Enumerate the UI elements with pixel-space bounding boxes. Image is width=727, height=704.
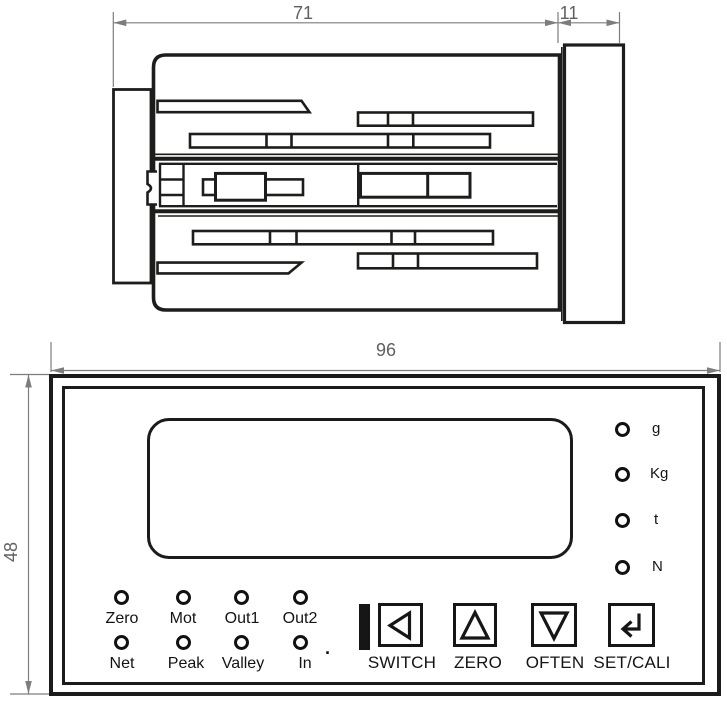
clamp-screw-body <box>216 173 266 200</box>
triangle-down-icon <box>535 607 573 644</box>
led-label-kg: Kg <box>650 465 668 482</box>
zero-button <box>453 603 497 647</box>
rail-upper-long <box>190 134 490 148</box>
led-zero <box>114 590 129 605</box>
zero-button-label: ZERO <box>454 653 502 673</box>
led-label-g: g <box>652 420 660 437</box>
band-right-box <box>361 173 471 197</box>
led-unit-kg <box>615 467 630 482</box>
dim-height-label: 48 <box>1 542 21 562</box>
rear-connector-block <box>114 90 152 284</box>
set-cali-button <box>608 603 655 647</box>
dim-width-label: 96 <box>376 340 396 360</box>
display-window <box>147 418 573 559</box>
enter-arrow-icon <box>612 607 652 644</box>
vent-slot-top <box>158 101 310 112</box>
led-mot <box>176 590 191 605</box>
triangle-left-icon <box>382 607 420 644</box>
rail-lower-right <box>358 254 537 269</box>
led-out1 <box>234 590 249 605</box>
led-in <box>293 635 308 650</box>
stray-mark <box>359 604 370 650</box>
dim-depth-label: 71 <box>293 3 313 23</box>
led-out2 <box>293 590 308 605</box>
status-label-mot: Mot <box>170 610 197 628</box>
stray-dot: . <box>325 638 330 659</box>
dim-bezel-label: 11 <box>560 3 579 23</box>
led-label-t: t <box>654 511 658 528</box>
vent-slot-bottom <box>158 263 302 274</box>
often-button-label: OFTEN <box>526 653 585 673</box>
led-unit-g <box>615 422 630 437</box>
led-unit-n <box>615 560 630 575</box>
rail-lower-long <box>193 231 493 244</box>
rail-upper-right <box>358 113 533 126</box>
triangle-up-icon <box>456 607 494 644</box>
front-bezel <box>565 45 624 323</box>
often-button <box>531 603 577 647</box>
status-label-out1: Out1 <box>225 610 260 628</box>
led-peak <box>176 635 191 650</box>
meter-dimension-drawing: 71 11 96 48 <box>0 0 727 704</box>
status-label-net: Net <box>110 655 135 673</box>
led-net <box>114 635 129 650</box>
led-valley <box>234 635 249 650</box>
switch-button-label: SWITCH <box>368 653 436 673</box>
status-label-zero: Zero <box>106 610 139 628</box>
led-unit-t <box>615 513 630 528</box>
status-label-in: In <box>298 655 311 673</box>
status-label-peak: Peak <box>168 655 204 673</box>
status-label-valley: Valley <box>222 655 264 673</box>
set-cali-button-label: SET/CALI <box>593 653 670 673</box>
status-label-out2: Out2 <box>283 610 318 628</box>
switch-button <box>378 603 423 647</box>
led-label-n: N <box>652 558 663 575</box>
housing-side-view <box>114 45 624 323</box>
